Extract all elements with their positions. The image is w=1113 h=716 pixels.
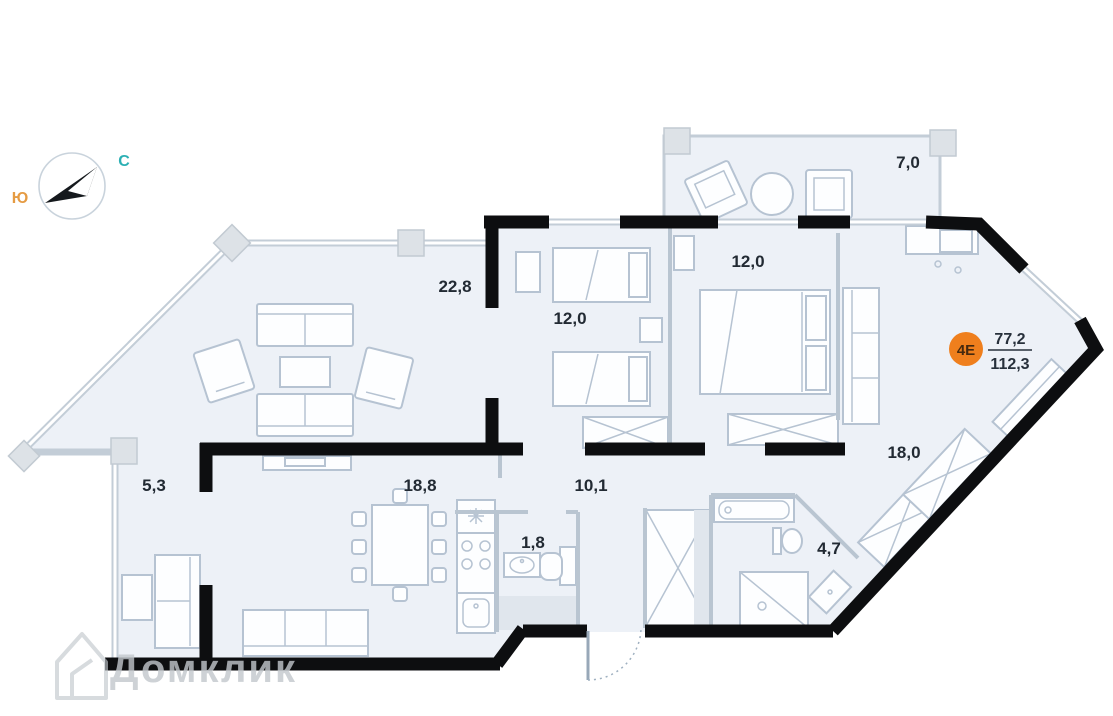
room-label-loggia: 5,3 — [142, 476, 166, 495]
unit-living-area: 77,2 — [994, 331, 1025, 348]
compass-north-label: С — [118, 153, 130, 170]
floor-plan-canvas: 7,0 22,8 12,0 12,0 18,0 5,3 18,8 10,1 1,… — [0, 0, 1113, 716]
floor-plan-svg: 7,0 22,8 12,0 12,0 18,0 5,3 18,8 10,1 1,… — [0, 0, 1113, 716]
room-label-living: 22,8 — [438, 277, 471, 296]
toilet-bowl — [540, 553, 562, 580]
entrance-door — [588, 629, 641, 680]
compass-south-label: Ю — [12, 190, 29, 207]
room-label-kitchen: 18,8 — [403, 476, 436, 495]
compass: Ю С — [12, 153, 130, 219]
entrance-door-arc — [588, 629, 641, 680]
unit-badge-label: 4Е — [957, 342, 975, 359]
room-label-hall: 18,0 — [887, 443, 920, 462]
toilet-2 — [782, 529, 802, 553]
room-label-balcony: 7,0 — [896, 153, 920, 172]
room-label-bathroom: 4,7 — [817, 539, 841, 558]
room-label-bedroom2: 12,0 — [731, 252, 764, 271]
room-label-wc: 1,8 — [521, 533, 545, 552]
watermark-text: Домклик — [110, 647, 297, 691]
unit-total-area: 112,3 — [990, 356, 1029, 373]
room-label-bedroom1: 12,0 — [553, 309, 586, 328]
watermark-logo-icon — [57, 634, 106, 698]
room-label-corridor: 10,1 — [574, 476, 607, 495]
